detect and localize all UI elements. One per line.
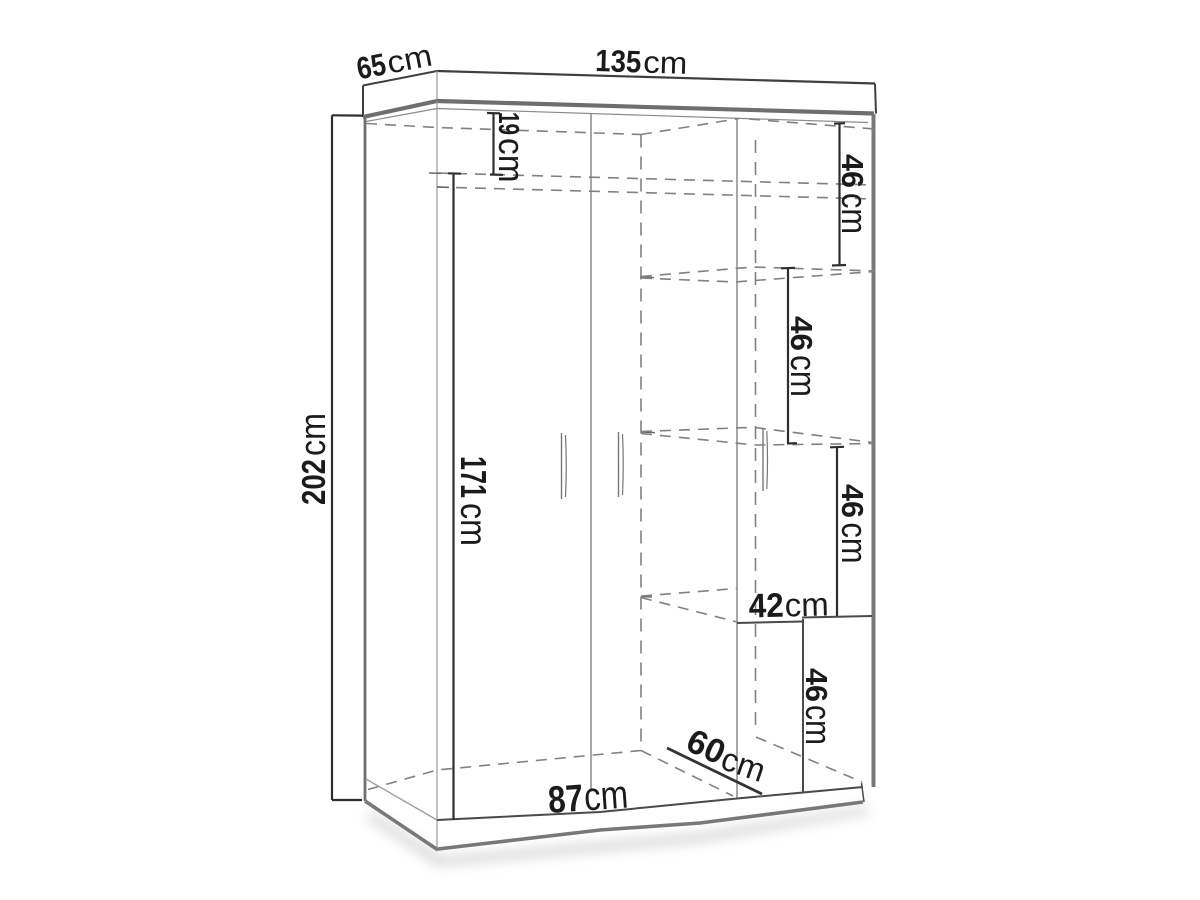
svg-text:cm: cm <box>798 705 839 745</box>
svg-text:87: 87 <box>547 778 585 822</box>
svg-text:65: 65 <box>354 46 389 86</box>
svg-text:cm: cm <box>583 773 630 820</box>
svg-text:cm: cm <box>643 45 688 81</box>
svg-text:46: 46 <box>799 668 834 702</box>
svg-text:202: 202 <box>295 459 332 505</box>
svg-text:cm: cm <box>784 585 829 623</box>
svg-text:135: 135 <box>595 43 642 79</box>
svg-text:cm: cm <box>834 193 875 234</box>
svg-text:171: 171 <box>453 456 494 498</box>
svg-text:19: 19 <box>492 112 524 135</box>
svg-text:42: 42 <box>748 587 784 626</box>
svg-text:46: 46 <box>835 154 870 188</box>
svg-text:46: 46 <box>784 316 819 351</box>
svg-text:cm: cm <box>783 355 824 397</box>
svg-text:cm: cm <box>292 413 333 456</box>
svg-text:46: 46 <box>835 484 870 518</box>
svg-text:cm: cm <box>491 138 532 183</box>
svg-text:cm: cm <box>453 503 494 546</box>
svg-text:cm: cm <box>834 523 875 564</box>
